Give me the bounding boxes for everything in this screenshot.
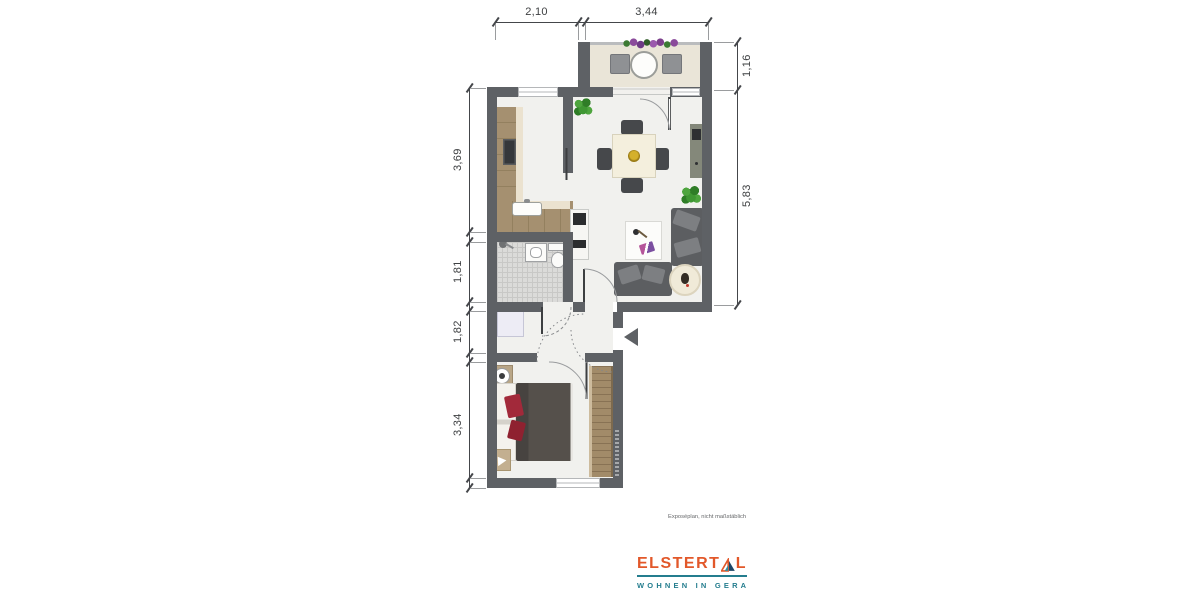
bedroom-door-arc xyxy=(549,362,587,399)
dim-extension xyxy=(471,302,486,303)
plan-disclaimer: Exposéplan, nicht maßstäblich xyxy=(668,513,746,519)
logo-tagline: WOHNEN IN GERA xyxy=(637,581,747,590)
dim-extension xyxy=(471,488,486,489)
dim-extension xyxy=(495,24,496,40)
dimension-label: 1,82 xyxy=(452,312,464,352)
dim-extension xyxy=(578,24,579,40)
dimension-label: 1,16 xyxy=(741,48,753,84)
entrance-arrow-icon xyxy=(624,328,638,346)
dim-extension xyxy=(714,90,734,91)
dimension-label: 5,83 xyxy=(741,176,753,216)
logo-wordmark: ELSTERT L xyxy=(637,556,747,572)
dimension-label: 3,34 xyxy=(452,405,464,445)
dim-extension xyxy=(471,353,486,354)
logo-text-part1: ELSTERT xyxy=(637,556,720,572)
dimension-line-top xyxy=(495,22,708,23)
dim-extension xyxy=(708,24,709,40)
dim-extension xyxy=(471,88,486,89)
living-door-arc xyxy=(584,269,617,302)
balcony-door-arc xyxy=(640,99,670,130)
dimension-label: 1,81 xyxy=(452,252,464,292)
dim-extension xyxy=(471,232,486,233)
dim-extension xyxy=(714,42,734,43)
dim-extension xyxy=(471,242,486,243)
dimension-label: 3,69 xyxy=(452,140,464,180)
company-logo: ELSTERT L WOHNEN IN GERA xyxy=(637,556,747,590)
entry-door-swing-dotted xyxy=(571,330,613,372)
dim-extension xyxy=(471,311,486,312)
dimension-line-right xyxy=(737,42,738,305)
dimension-line-left xyxy=(469,88,470,489)
logo-divider xyxy=(637,575,747,577)
logo-triangle-icon xyxy=(721,558,735,572)
dim-extension xyxy=(471,478,486,479)
door-swing-overlay xyxy=(440,0,760,500)
dim-extension xyxy=(714,305,734,306)
hall-door-swing-dotted xyxy=(537,314,585,362)
dimension-label: 2,10 xyxy=(495,6,578,18)
logo-text-part2: L xyxy=(736,556,747,572)
dim-extension xyxy=(471,362,486,363)
dimension-label: 3,44 xyxy=(585,6,708,18)
dim-extension xyxy=(585,24,586,40)
floor-plan-page: 2,10 3,44 1,16 5,83 3,69 1,81 1,82 3,34 … xyxy=(0,0,1200,600)
bathroom-door-arc xyxy=(542,307,571,336)
